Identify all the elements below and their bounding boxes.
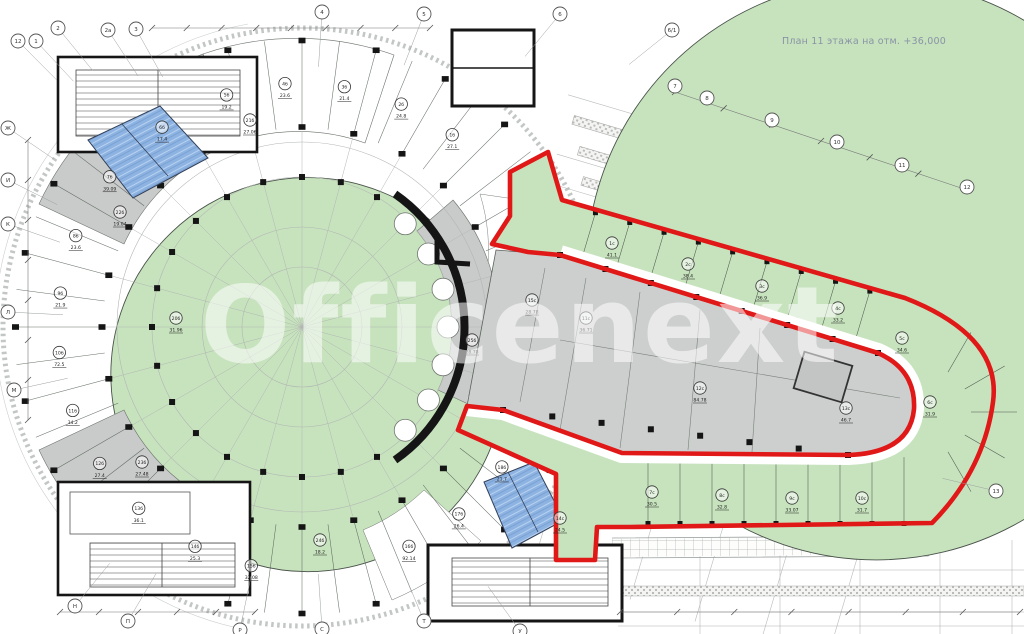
axis-bubble-label: 12 bbox=[15, 39, 22, 45]
room-divider bbox=[24, 379, 110, 402]
room-tag: 7с bbox=[649, 490, 655, 496]
room-tag: 20б bbox=[172, 316, 181, 322]
column bbox=[299, 524, 306, 530]
room-area: 33.07 bbox=[785, 508, 798, 514]
column bbox=[50, 467, 57, 473]
room-area: 36.1 bbox=[134, 518, 144, 524]
room-tag: 16б bbox=[405, 544, 414, 550]
room-tag: 14б bbox=[191, 544, 200, 550]
column bbox=[105, 376, 112, 382]
axis-bubble-label: С bbox=[320, 627, 324, 633]
room-area: 30.5 bbox=[647, 502, 657, 508]
room-tag: 8б bbox=[73, 233, 79, 239]
niche-arc bbox=[394, 213, 416, 235]
room-area: 21.4 bbox=[339, 96, 349, 102]
niche-arc bbox=[394, 419, 416, 441]
room-area: 23.6 bbox=[280, 93, 290, 99]
inner-column bbox=[154, 285, 160, 291]
room-area: 32.08 bbox=[245, 575, 258, 581]
room-area: 24.5 bbox=[555, 528, 565, 534]
axis-leader-line bbox=[23, 46, 57, 80]
room-area: 24.8 bbox=[396, 114, 406, 120]
room-tag: 6с bbox=[927, 400, 933, 406]
column bbox=[697, 433, 703, 439]
room-tag: 7б bbox=[107, 175, 113, 181]
room-area: 18.2 bbox=[315, 550, 325, 556]
room-tag: 10б bbox=[55, 350, 64, 356]
room-tag: 18б bbox=[498, 465, 507, 471]
room-area: 31.96 bbox=[169, 328, 182, 334]
room-area: 19.2 bbox=[221, 104, 231, 110]
room-tag: 3б bbox=[341, 85, 347, 91]
drawing-title: План 11 этажа на отм. +36,000 bbox=[782, 36, 946, 47]
room-area: 34.2 bbox=[68, 420, 78, 426]
inner-column bbox=[299, 474, 305, 480]
room-area: 31.9 bbox=[925, 412, 935, 418]
column bbox=[440, 466, 447, 472]
axis-bubble-label: Т bbox=[421, 619, 426, 625]
room-tag: 9б bbox=[57, 291, 63, 297]
inner-column bbox=[299, 174, 305, 180]
inner-column bbox=[260, 179, 266, 185]
axis-bubble-label: Н bbox=[73, 604, 77, 610]
room-tag: 21б bbox=[246, 118, 255, 124]
room-area: 92.14 bbox=[402, 556, 415, 562]
column bbox=[157, 466, 164, 472]
blue-block-bottom-center bbox=[484, 462, 564, 548]
room-tag: 12б bbox=[95, 461, 104, 467]
room-tag: 15б bbox=[247, 563, 256, 569]
inner-column bbox=[169, 249, 175, 255]
axis-leader-line bbox=[14, 132, 54, 159]
room-tag: 1с bbox=[609, 241, 615, 247]
axis-bubble-label: 2 bbox=[56, 26, 60, 32]
watermark: Officenext bbox=[200, 264, 840, 387]
room-area: 84.78 bbox=[693, 398, 706, 404]
inner-column bbox=[338, 179, 344, 185]
axis-bubble-label: 11 bbox=[899, 163, 906, 169]
axis-bubble-label: 6/1 bbox=[668, 28, 677, 34]
axis-bubble-label: М bbox=[12, 388, 17, 394]
room-area: 27.1 bbox=[447, 144, 457, 150]
room-tag: 8с bbox=[719, 493, 725, 499]
inner-column bbox=[169, 399, 175, 405]
room-tag: 1б bbox=[449, 133, 455, 139]
room-area: 27.4 bbox=[95, 473, 105, 479]
room-area: 32.8 bbox=[717, 505, 727, 511]
column bbox=[746, 439, 752, 445]
room-tag: 13б bbox=[134, 506, 143, 512]
axis-leader-line bbox=[318, 574, 321, 622]
inner-column bbox=[149, 324, 155, 330]
column bbox=[105, 272, 112, 278]
axis-bubble-label: Ж bbox=[5, 126, 11, 132]
inner-column bbox=[374, 454, 380, 460]
room-tag: 23б bbox=[138, 460, 147, 466]
room-tag: 22б bbox=[116, 210, 125, 216]
column bbox=[299, 611, 306, 617]
room-area: 23.6 bbox=[71, 245, 81, 251]
room-tag: 11б bbox=[68, 408, 77, 414]
room-area: 26.4 bbox=[454, 523, 464, 529]
room-tag: 24б bbox=[316, 538, 325, 544]
room-area: 19.04 bbox=[113, 222, 126, 228]
axis-leader-line bbox=[15, 226, 60, 242]
column bbox=[224, 601, 231, 607]
room-area: 25.3 bbox=[190, 556, 200, 562]
column bbox=[440, 183, 447, 189]
room-divider bbox=[402, 78, 447, 155]
room-area: 21.7 bbox=[497, 476, 507, 482]
inner-column bbox=[193, 430, 199, 436]
axis-bubble-label: 1 bbox=[34, 39, 38, 45]
axis-bubble-label: 2а bbox=[105, 28, 112, 34]
room-area: 17.4 bbox=[157, 137, 167, 143]
room-area: 31.7 bbox=[857, 508, 867, 514]
room-tag: 13с bbox=[842, 406, 851, 412]
room-tag: 5б bbox=[224, 93, 230, 99]
inner-column bbox=[338, 469, 344, 475]
axis-bubble-label: К bbox=[6, 222, 10, 228]
stair-tower-bottom-left bbox=[58, 482, 250, 595]
room-tag: 2б bbox=[398, 102, 404, 108]
axis-bubble-label: 9 bbox=[770, 118, 774, 124]
column bbox=[549, 413, 555, 419]
column bbox=[472, 224, 479, 230]
axis-leader-line bbox=[629, 34, 666, 64]
room-tag: 10с bbox=[858, 496, 867, 502]
column bbox=[350, 517, 357, 523]
column bbox=[373, 47, 380, 53]
axis-bubble-label: 12 bbox=[964, 185, 971, 191]
column bbox=[50, 181, 57, 187]
axis-bubble-label: 5 bbox=[422, 12, 426, 18]
room-area: 46.7 bbox=[841, 418, 851, 424]
room-tag: 14с bbox=[556, 516, 565, 522]
floor-plan-canvas: 12122а34566/178910111213ЖИКЛМНПРСТУ 1б27… bbox=[0, 0, 1024, 634]
column bbox=[350, 131, 357, 137]
column bbox=[796, 446, 802, 452]
column bbox=[648, 426, 654, 432]
column bbox=[399, 497, 406, 503]
room-tag: 17б bbox=[454, 512, 463, 518]
axis-bubble-label: 13 bbox=[993, 489, 1000, 495]
column bbox=[299, 38, 306, 44]
column bbox=[125, 424, 132, 430]
site-hatch-strip bbox=[622, 586, 1024, 596]
inner-column bbox=[224, 454, 230, 460]
room-tag: 9с bbox=[789, 496, 795, 502]
niche-arc bbox=[417, 389, 439, 411]
axis-bubble-label: П bbox=[126, 619, 130, 625]
column bbox=[299, 124, 306, 130]
column bbox=[442, 76, 449, 82]
room-area: 72.5 bbox=[54, 362, 64, 368]
column bbox=[599, 420, 605, 426]
floor-plan-drawing: 12122а34566/178910111213ЖИКЛМНПРСТУ 1б27… bbox=[0, 0, 1024, 634]
room-tag: 4б bbox=[282, 81, 288, 87]
column bbox=[224, 47, 231, 53]
axis-bubble-label: 4 bbox=[320, 10, 324, 16]
inner-column bbox=[193, 218, 199, 224]
axis-bubble-label: Л bbox=[6, 310, 10, 316]
axis-leader-line bbox=[404, 21, 421, 66]
room-tag: 6б bbox=[159, 125, 165, 131]
room-area: 41.1 bbox=[607, 253, 617, 259]
axis-bubble-label: 10 bbox=[834, 140, 841, 146]
column bbox=[399, 151, 406, 157]
inner-column bbox=[154, 363, 160, 369]
column bbox=[501, 122, 508, 128]
axis-bubble-label: 7 bbox=[673, 84, 677, 90]
room-area: 34.6 bbox=[897, 348, 907, 354]
room-area: 27.48 bbox=[135, 472, 148, 478]
column bbox=[99, 324, 106, 330]
room-tag: 5с bbox=[899, 336, 905, 342]
room-area: 27.06 bbox=[243, 130, 256, 136]
room-area: 39.09 bbox=[103, 186, 116, 192]
inner-column bbox=[224, 194, 230, 200]
inner-column bbox=[260, 469, 266, 475]
column bbox=[12, 324, 19, 330]
axis-bubble-label: 8 bbox=[705, 96, 709, 102]
inner-column bbox=[374, 194, 380, 200]
rooftop-structure-top bbox=[452, 30, 534, 106]
axis-leader-line bbox=[15, 312, 63, 314]
column bbox=[373, 601, 380, 607]
room-divider bbox=[24, 252, 110, 275]
axis-bubble-label: И bbox=[6, 178, 10, 184]
axis-bubble-label: 3 bbox=[134, 27, 138, 33]
axis-bubble-label: 6 bbox=[558, 12, 562, 18]
room-area: 21.9 bbox=[55, 303, 65, 309]
